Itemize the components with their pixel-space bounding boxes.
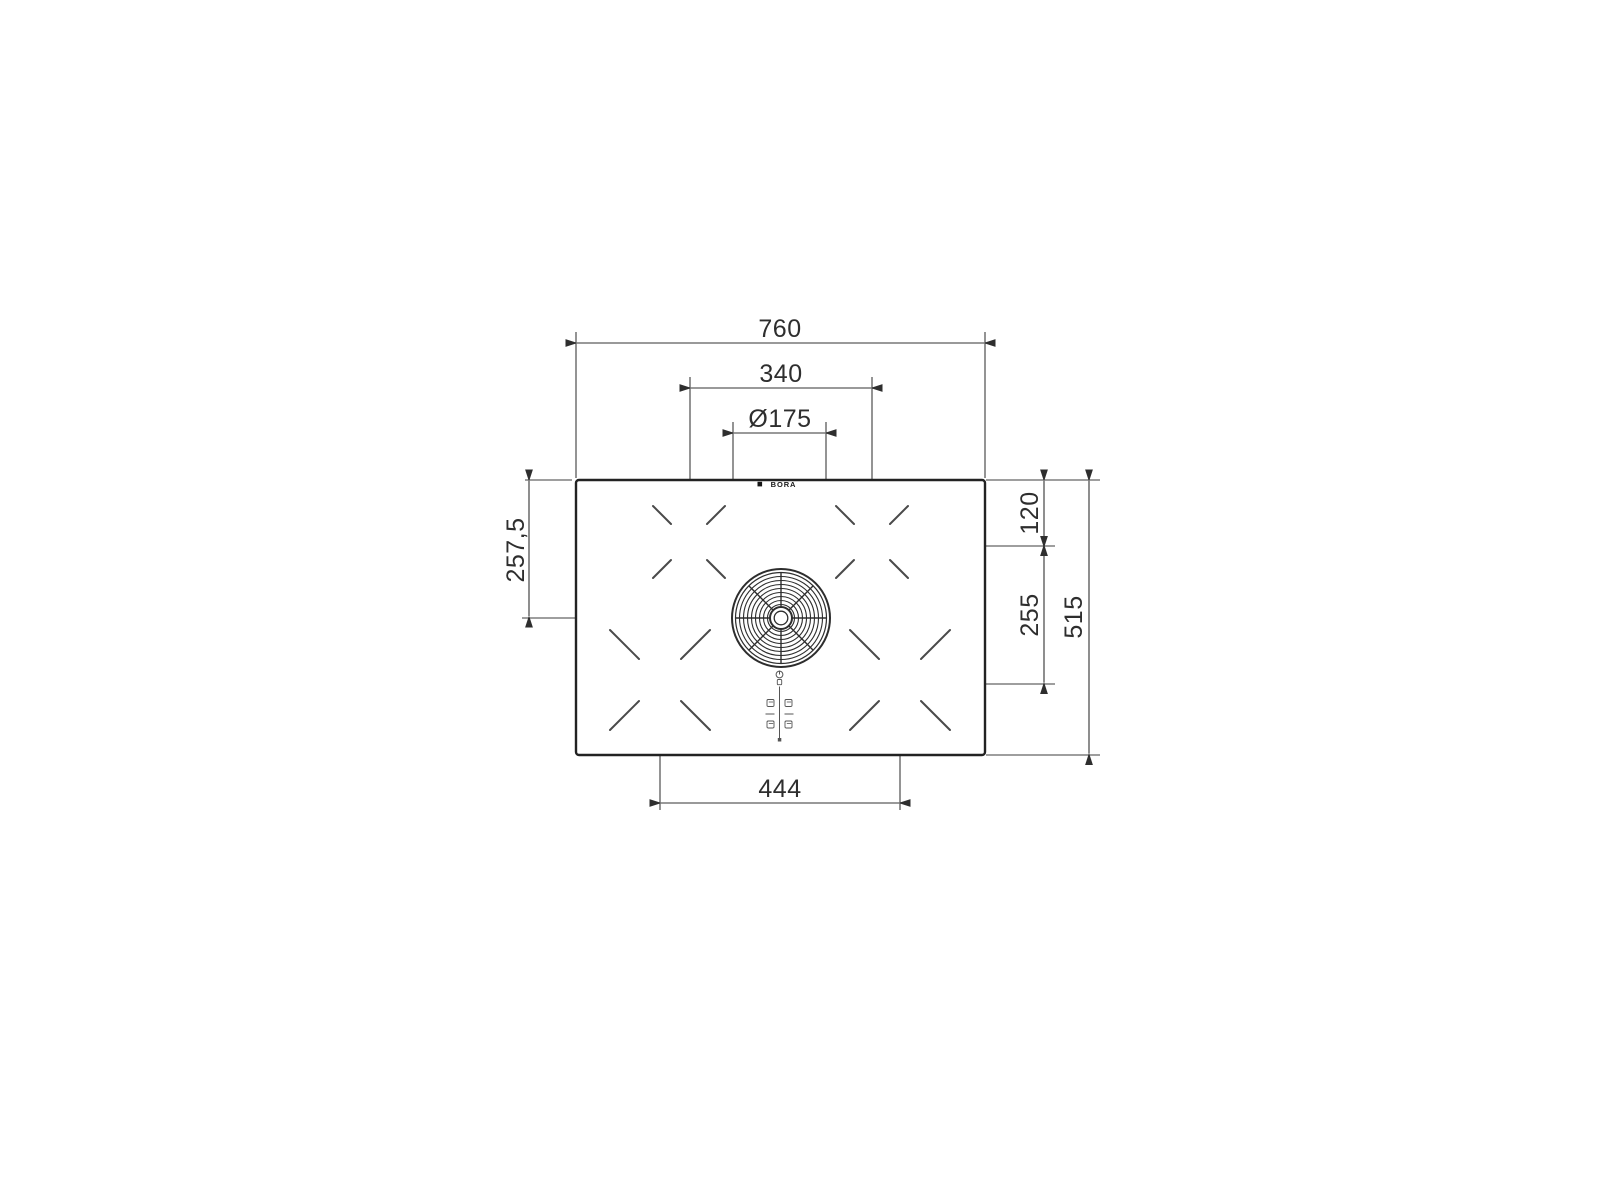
label-top-zone-spacing: 340 [759,360,802,388]
vent-grille-icon [732,569,830,667]
label-bottom-zone-spacing: 444 [758,775,801,803]
label-right-zone-spacing: 255 [1016,593,1044,636]
control-end-mark [778,738,782,742]
bora-logo-text: BORA [771,480,797,489]
label-total-width: 760 [758,315,801,343]
cooktop-dimension-drawing: BORA [0,0,1600,1200]
technical-drawing-page: BORA [0,0,1600,1200]
label-right-top-offset: 120 [1016,491,1044,534]
label-total-depth: 515 [1060,595,1088,638]
bora-logo-mark-icon [758,482,763,487]
label-vent-diameter: Ø175 [748,405,811,433]
label-left-center-offset: 257,5 [502,517,530,582]
vent-hub-center [774,611,788,625]
